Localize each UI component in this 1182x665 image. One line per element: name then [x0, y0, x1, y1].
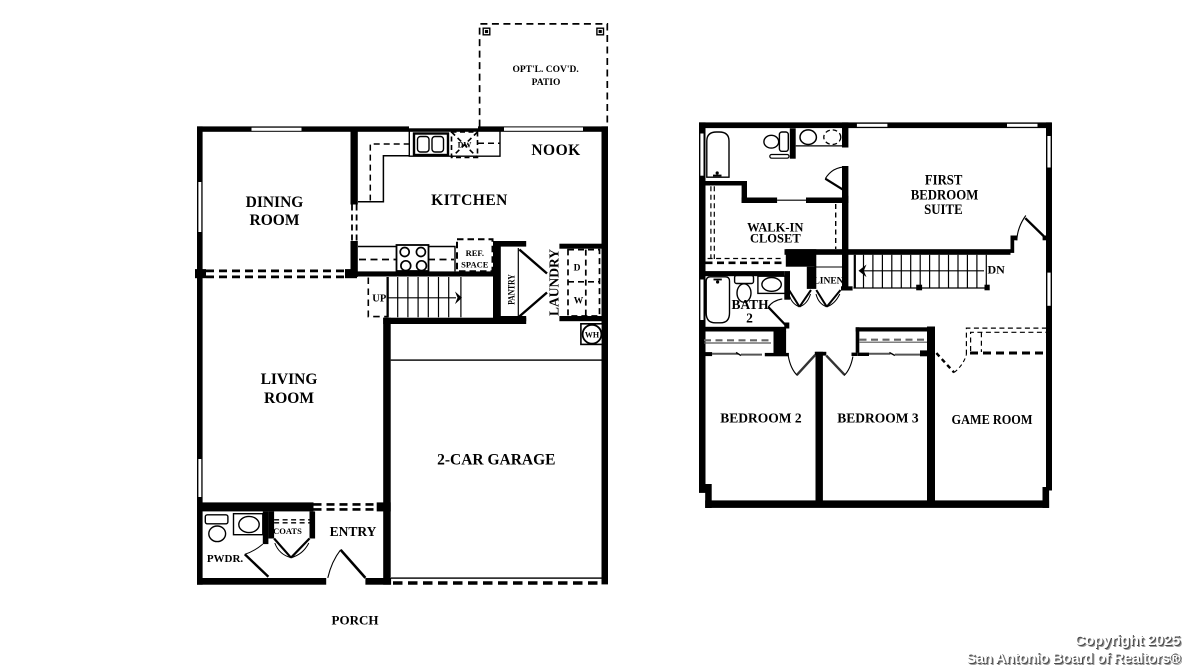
svg-text:ROOM: ROOM — [250, 212, 300, 229]
svg-text:DINING: DINING — [246, 194, 304, 211]
svg-text:ROOM: ROOM — [264, 390, 314, 407]
svg-text:UP: UP — [372, 294, 387, 305]
svg-text:GAME ROOM: GAME ROOM — [952, 412, 1033, 427]
svg-text:BEDROOM 3: BEDROOM 3 — [837, 411, 919, 426]
svg-text:LINEN: LINEN — [813, 277, 843, 287]
svg-text:2: 2 — [746, 311, 753, 326]
svg-text:FIRST: FIRST — [925, 173, 963, 189]
svg-text:ENTRY: ENTRY — [330, 524, 377, 539]
svg-text:PANTRY: PANTRY — [508, 274, 518, 305]
svg-text:WH: WH — [585, 331, 600, 340]
svg-text:D: D — [574, 264, 581, 274]
svg-text:LIVING: LIVING — [261, 371, 318, 388]
svg-text:W: W — [574, 297, 584, 307]
svg-text:2-CAR GARAGE: 2-CAR GARAGE — [437, 452, 555, 469]
svg-text:PATIO: PATIO — [532, 78, 561, 88]
svg-text:PORCH: PORCH — [332, 613, 379, 628]
svg-text:PWDR.: PWDR. — [207, 553, 244, 565]
svg-text:DW: DW — [458, 141, 472, 150]
svg-text:CLOSET: CLOSET — [750, 232, 801, 246]
svg-text:DN: DN — [988, 263, 1006, 277]
svg-text:NOOK: NOOK — [531, 142, 580, 159]
svg-text:BEDROOM 2: BEDROOM 2 — [720, 411, 802, 426]
svg-text:COATS: COATS — [273, 526, 302, 536]
svg-text:REF.: REF. — [466, 248, 484, 258]
svg-text:SUITE: SUITE — [924, 202, 963, 218]
svg-text:OPT'L. COV'D.: OPT'L. COV'D. — [512, 65, 578, 75]
svg-text:LAUNDRY: LAUNDRY — [547, 249, 562, 316]
svg-text:SPACE: SPACE — [461, 260, 489, 270]
svg-text:KITCHEN: KITCHEN — [431, 192, 508, 209]
